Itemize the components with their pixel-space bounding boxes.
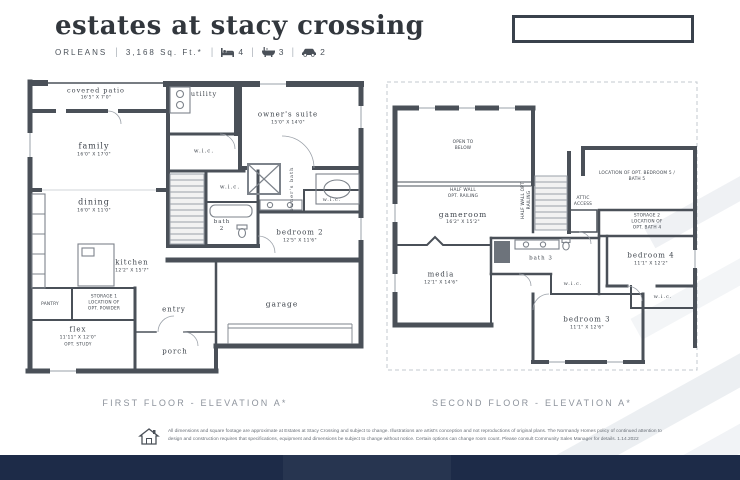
room-label-entry: entry	[162, 306, 186, 315]
header: estates at stacy crossing ORLEANS | 3,16…	[55, 12, 424, 58]
plan-name: ORLEANS	[55, 48, 107, 57]
second-floor-plan: OPEN TO BELOW HALF WALL OPT. RAILING HAL…	[383, 78, 703, 408]
label-storage2-opt-bath4: STORAGE 2 LOCATION OF OPT. BATH 4	[627, 214, 667, 233]
room-label-owners-suite: owner's suite 15'0" X 14'0"	[258, 110, 318, 125]
room-label-bedroom4: bedroom 4 11'1" X 12'2"	[627, 251, 674, 266]
room-label-utility: utility	[191, 90, 217, 98]
room-label-wic: w.i.c.	[564, 281, 583, 287]
room-label-family: family 16'0" X 17'0"	[77, 142, 111, 159]
label-attic-access: ATTIC ACCESS	[571, 196, 595, 208]
disclaimer-line-1: All dimensions and square footage are ap…	[168, 428, 662, 436]
first-floor-plan: covered patio 16'5" X 7'0" utility owner…	[20, 78, 370, 408]
separator: |	[211, 47, 214, 58]
room-label-bath2: bath 2	[212, 219, 232, 233]
room-label-flex: flex 11'11" X 12'0" OPT. STUDY	[60, 325, 97, 346]
label-half-wall: HALF WALL OPT. RAILING	[445, 188, 481, 200]
second-floor-caption: SECOND FLOOR - ELEVATION A*	[432, 398, 632, 408]
page-title: estates at stacy crossing	[55, 12, 424, 41]
room-label-bedroom2: bedroom 2 12'5" X 11'6"	[276, 228, 323, 243]
logo-placeholder-box	[512, 15, 694, 43]
label-opt-bedroom5: LOCATION OF OPT. BEDROOM 5 / BATH 5	[598, 171, 676, 183]
room-label-wic: w.i.c.	[654, 294, 673, 300]
bed-icon	[221, 48, 234, 57]
room-label-kitchen: kitchen 12'2" X 15'7"	[115, 258, 149, 273]
room-label-storage-opt-powder: STORAGE 1 LOCATION OF OPT. POWDER	[84, 295, 124, 314]
disclaimer-text: All dimensions and square footage are ap…	[168, 428, 662, 444]
room-label-gameroom: gameroom 16'2" X 15'2"	[439, 210, 488, 226]
floorplan-sheet: estates at stacy crossing ORLEANS | 3,16…	[0, 0, 740, 480]
room-label-bath3: bath 3	[529, 256, 553, 263]
separator: |	[115, 47, 118, 58]
plan-specs: ORLEANS | 3,168 Sq. Ft.* | 4 | 3 | 2	[55, 47, 424, 58]
square-footage: 3,168 Sq. Ft.*	[126, 48, 203, 57]
first-floor-caption: FIRST FLOOR - ELEVATION A*	[102, 398, 287, 408]
room-label-bedroom3: bedroom 3 11'1" X 12'6"	[563, 315, 610, 330]
disclaimer-line-2: design and construction requires that sp…	[168, 436, 662, 444]
room-label-media: media 12'1" X 14'6"	[424, 270, 458, 285]
room-label-covered-patio: covered patio 16'5" X 7'0"	[67, 87, 125, 102]
separator: |	[291, 47, 294, 58]
beds-count: 4	[238, 47, 243, 57]
footer-bar-accent	[283, 455, 451, 480]
room-label-wic: w.i.c.	[220, 185, 240, 192]
cars-count: 2	[320, 47, 325, 57]
baths-spec: 3	[262, 47, 284, 57]
disclaimer: All dimensions and square footage are ap…	[138, 428, 718, 445]
room-label-pantry: PANTRY	[41, 302, 59, 308]
room-label-garage: garage	[266, 299, 299, 308]
house-icon	[138, 428, 160, 445]
separator: |	[251, 47, 254, 58]
label-half-wall-vertical: HALF WALL OPT. RAILING	[521, 181, 533, 219]
bath-icon	[262, 47, 275, 57]
garage-spec: 2	[302, 47, 325, 57]
beds-spec: 4	[221, 47, 243, 57]
room-label-owners-bath: owner's bath	[289, 167, 295, 212]
room-label-wic: w.i.c.	[323, 197, 342, 203]
car-icon	[302, 48, 316, 57]
room-label-dining: dining 16'0" X 11'0"	[77, 198, 111, 215]
room-label-porch: porch	[162, 348, 187, 357]
footer-navy-bar	[0, 455, 740, 480]
label-open-to-below: OPEN TO BELOW	[448, 140, 478, 152]
room-label-wic: w.i.c.	[194, 149, 214, 156]
baths-count: 3	[279, 47, 284, 57]
